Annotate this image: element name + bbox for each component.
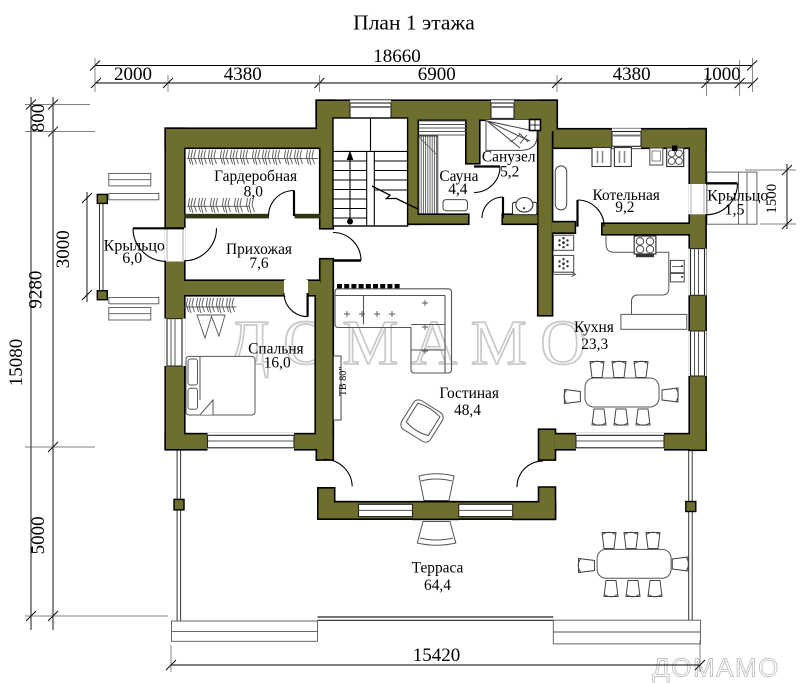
svg-text:7,6: 7,6	[249, 255, 269, 272]
svg-text:9,2: 9,2	[615, 199, 634, 216]
svg-text:ТВ 80": ТВ 80"	[338, 367, 349, 396]
svg-text:Гостиная: Гостиная	[439, 385, 499, 402]
svg-text:48,4: 48,4	[454, 402, 481, 419]
svg-text:18660: 18660	[373, 46, 421, 67]
svg-text:8,0: 8,0	[244, 184, 264, 201]
svg-text:ДОМАМО: ДОМАМО	[652, 653, 780, 683]
svg-text:4,4: 4,4	[448, 181, 468, 198]
svg-text:6900: 6900	[418, 64, 456, 85]
svg-text:9280: 9280	[25, 271, 46, 309]
svg-text:3000: 3000	[53, 230, 74, 268]
svg-text:15420: 15420	[413, 645, 461, 666]
svg-text:5,2: 5,2	[500, 164, 519, 181]
svg-text:1,5: 1,5	[725, 202, 745, 219]
svg-text:4380: 4380	[613, 64, 651, 85]
svg-text:64,4: 64,4	[424, 577, 451, 594]
svg-text:5000: 5000	[28, 516, 49, 554]
svg-text:Гардеробная: Гардеробная	[214, 168, 297, 185]
svg-text:23,3: 23,3	[581, 336, 608, 353]
svg-text:16,0: 16,0	[264, 355, 291, 372]
svg-text:800: 800	[28, 104, 49, 133]
svg-text:2000: 2000	[114, 64, 152, 85]
svg-text:План 1 этажа: План 1 этажа	[353, 11, 475, 35]
svg-text:1000: 1000	[703, 64, 741, 85]
svg-text:Терраса: Терраса	[412, 560, 464, 577]
svg-text:4380: 4380	[224, 64, 262, 85]
svg-text:Кухня: Кухня	[574, 319, 614, 336]
svg-text:15080: 15080	[6, 339, 27, 387]
svg-text:6,0: 6,0	[122, 250, 142, 267]
